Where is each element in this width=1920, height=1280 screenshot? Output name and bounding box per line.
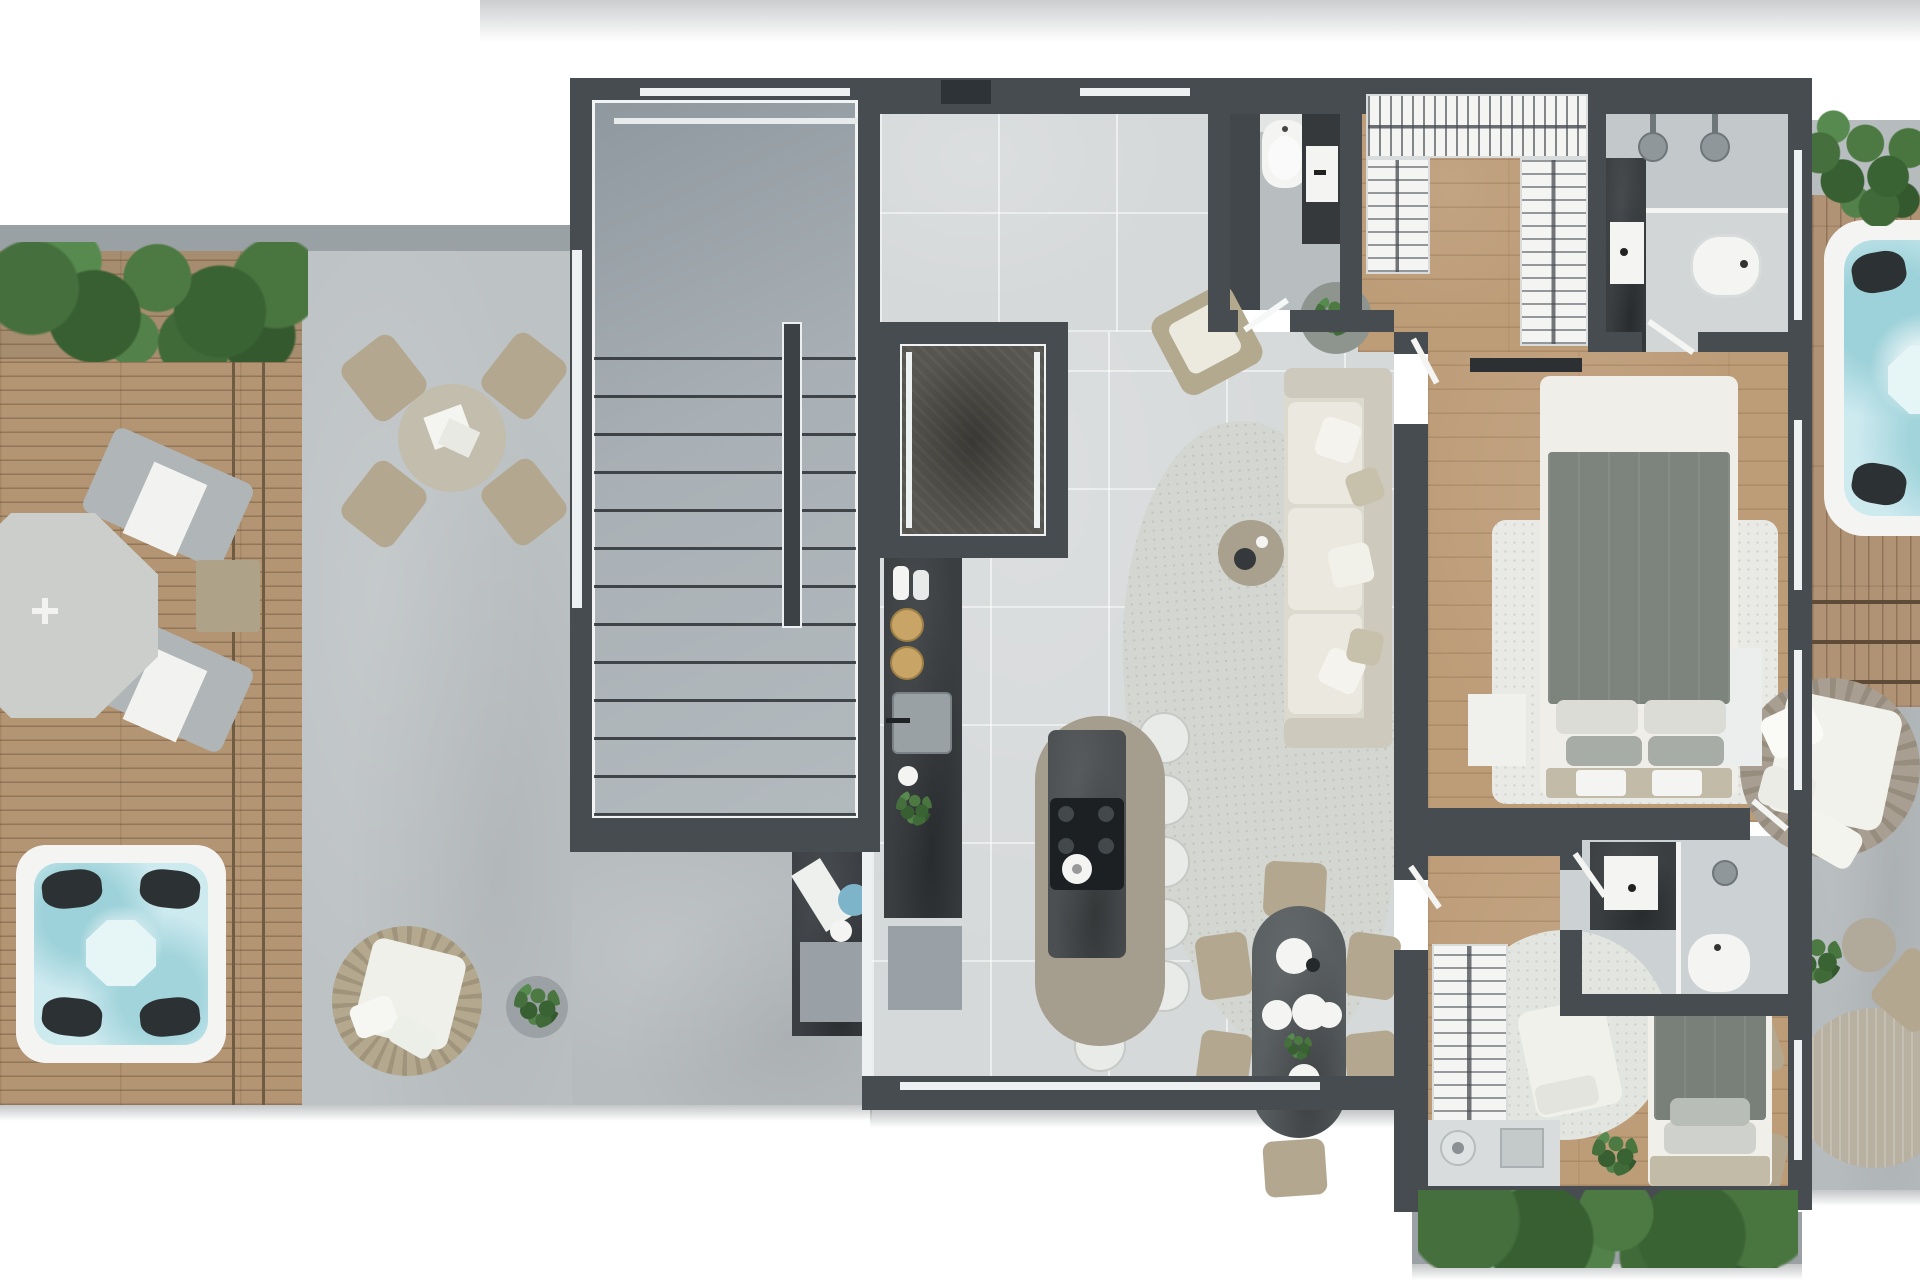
- bench-cushion-a: [1576, 770, 1626, 796]
- dining-chair-bottom: [1262, 1138, 1328, 1198]
- closet-shelf-right: [1520, 158, 1588, 346]
- stair-treads: [594, 330, 856, 816]
- bathroom2-bidet-dot: [1714, 944, 1721, 951]
- floor-plan: [0, 0, 1920, 1280]
- bath-right-window: [1794, 150, 1802, 320]
- wc-wall-bottom-a: [1208, 310, 1238, 332]
- fade-terrace-right-bottom: [1812, 1190, 1920, 1206]
- bedroom2-headboard: [1650, 1156, 1770, 1186]
- bbq-cabinet: [800, 942, 864, 1022]
- plate-4: [1316, 1002, 1342, 1028]
- kitchen-bottle-b: [913, 570, 929, 600]
- sofa-arm-top: [1284, 368, 1392, 398]
- kitchen-roll: [898, 766, 918, 786]
- entry-floor: [880, 114, 1208, 332]
- planter-left-greens: [0, 242, 308, 362]
- shower-stem-2: [1712, 114, 1718, 134]
- bbq-kettle: [830, 920, 852, 942]
- bath-basin-faucet: [1620, 248, 1628, 256]
- bed-pillow-3: [1566, 736, 1642, 766]
- burner-a: [1058, 806, 1074, 822]
- kitchen-faucet: [886, 718, 910, 723]
- bed-pillow-1: [1556, 700, 1638, 734]
- shower-head-1: [1638, 132, 1668, 162]
- top-wall-window-a: [640, 88, 850, 96]
- burner-b: [1098, 806, 1114, 822]
- bedroom2-wall-left-b: [1394, 950, 1428, 1212]
- wc-wall-left: [1208, 114, 1230, 332]
- bathtub-drain: [1740, 260, 1748, 268]
- bathtub: [1690, 234, 1762, 298]
- bed-bench: [1546, 768, 1732, 798]
- dining-chair-left-1: [1194, 931, 1254, 1002]
- stairwell-window: [572, 250, 582, 608]
- planter-right-greens: [1806, 108, 1920, 226]
- deck-right-step-2: [1812, 640, 1920, 644]
- bedroom2-sink-faucet: [1452, 1142, 1464, 1154]
- right-wall-window-a: [1794, 420, 1802, 590]
- kettle-lid: [1072, 864, 1082, 874]
- shower-head-2: [1700, 132, 1730, 162]
- lounger-side-table: [196, 560, 260, 632]
- burner-c: [1058, 838, 1074, 854]
- elevator-door-left: [906, 352, 912, 528]
- kitchen-sink: [892, 692, 952, 754]
- elevator-shaft: [900, 344, 1046, 536]
- deck-left-board-a: [232, 358, 235, 1105]
- kitchen-board-a: [890, 608, 924, 642]
- bed-pillow-4: [1648, 736, 1724, 766]
- bedroom2-pillow-a: [1664, 1122, 1756, 1154]
- bed-duvet: [1548, 452, 1730, 704]
- wall-closet-bath: [1588, 94, 1606, 352]
- bathroom2-shower-head: [1712, 860, 1738, 886]
- bathroom2-faucet: [1628, 884, 1636, 892]
- kitchen-cabinet-block: [888, 926, 962, 1010]
- stair-rail: [782, 322, 802, 628]
- elevator-door-right: [1034, 352, 1040, 528]
- kitchen-board-b: [890, 646, 924, 680]
- dining-small-bowl: [1306, 958, 1320, 972]
- wc-toilet-button: [1282, 126, 1288, 132]
- closet-shelf-top: [1366, 94, 1588, 158]
- hot-tub-left-center: [86, 920, 156, 986]
- wc-toilet-seat: [1268, 136, 1302, 180]
- right-wall-window-c: [1794, 1040, 1802, 1160]
- stair-landing-line: [614, 118, 858, 124]
- bathroom2-glass: [1676, 842, 1681, 994]
- bedroom-top-wall-a: [1594, 332, 1642, 352]
- nightstand-left: [1468, 694, 1526, 766]
- plate-2: [1262, 1000, 1292, 1030]
- terrace-plant: [514, 982, 560, 1028]
- bedroom2-plant: [1592, 1130, 1638, 1176]
- bedroom2-desk-sink: [1500, 1128, 1544, 1168]
- bedroom2-top-wall: [1428, 836, 1560, 856]
- coffee-table-cup: [1256, 536, 1268, 548]
- bed-pillow-2: [1644, 700, 1726, 734]
- bathroom2-sink: [1604, 856, 1658, 910]
- top-wall-window-b: [1080, 88, 1190, 96]
- bottom-wall-window: [900, 1082, 1320, 1090]
- kitchen-plant: [896, 790, 932, 826]
- fade-bottom-living: [870, 1110, 1428, 1128]
- bedroom-tv-panel: [1470, 358, 1582, 372]
- left-glass-wall: [862, 852, 872, 1078]
- bathroom2-bottom-wall: [1560, 994, 1788, 1016]
- bathroom2-bidet: [1688, 934, 1750, 992]
- sof-pillow-e: [1345, 627, 1385, 667]
- bench-cushion-b: [1652, 770, 1702, 796]
- shower-stem-1: [1650, 114, 1656, 134]
- kitchen-bottle-a: [893, 566, 909, 600]
- sofa-arm-bottom: [1284, 718, 1392, 748]
- sofa-pillow-b: [1326, 541, 1375, 589]
- closet-shelf-left: [1366, 158, 1430, 274]
- umbrella-hub-2: [42, 598, 48, 624]
- wc-faucet: [1314, 170, 1326, 175]
- bathroom2-wall-left-b: [1560, 930, 1582, 1000]
- burner-d: [1098, 838, 1114, 854]
- wall-living-bedroom-b: [1394, 424, 1428, 812]
- top-shadow: [480, 0, 1920, 42]
- pouf-right: [1842, 918, 1896, 972]
- deck-right-step-1: [1812, 600, 1920, 604]
- planter-bottom-greens: [1418, 1190, 1798, 1268]
- bedroom-top-wall-b: [1698, 332, 1812, 352]
- bedroom2-pillow-b: [1670, 1098, 1750, 1126]
- wc-dark-strip: [1230, 114, 1260, 310]
- coffee-table-tray: [1234, 548, 1256, 570]
- fade-terrace-left-bottom: [0, 1105, 872, 1121]
- dining-centerpiece-plant: [1284, 1032, 1312, 1060]
- wall-wc-closet: [1340, 114, 1362, 332]
- right-wall-window-b: [1794, 650, 1802, 790]
- entry-door-notch: [941, 80, 991, 104]
- deck-left-board-b: [262, 358, 265, 1105]
